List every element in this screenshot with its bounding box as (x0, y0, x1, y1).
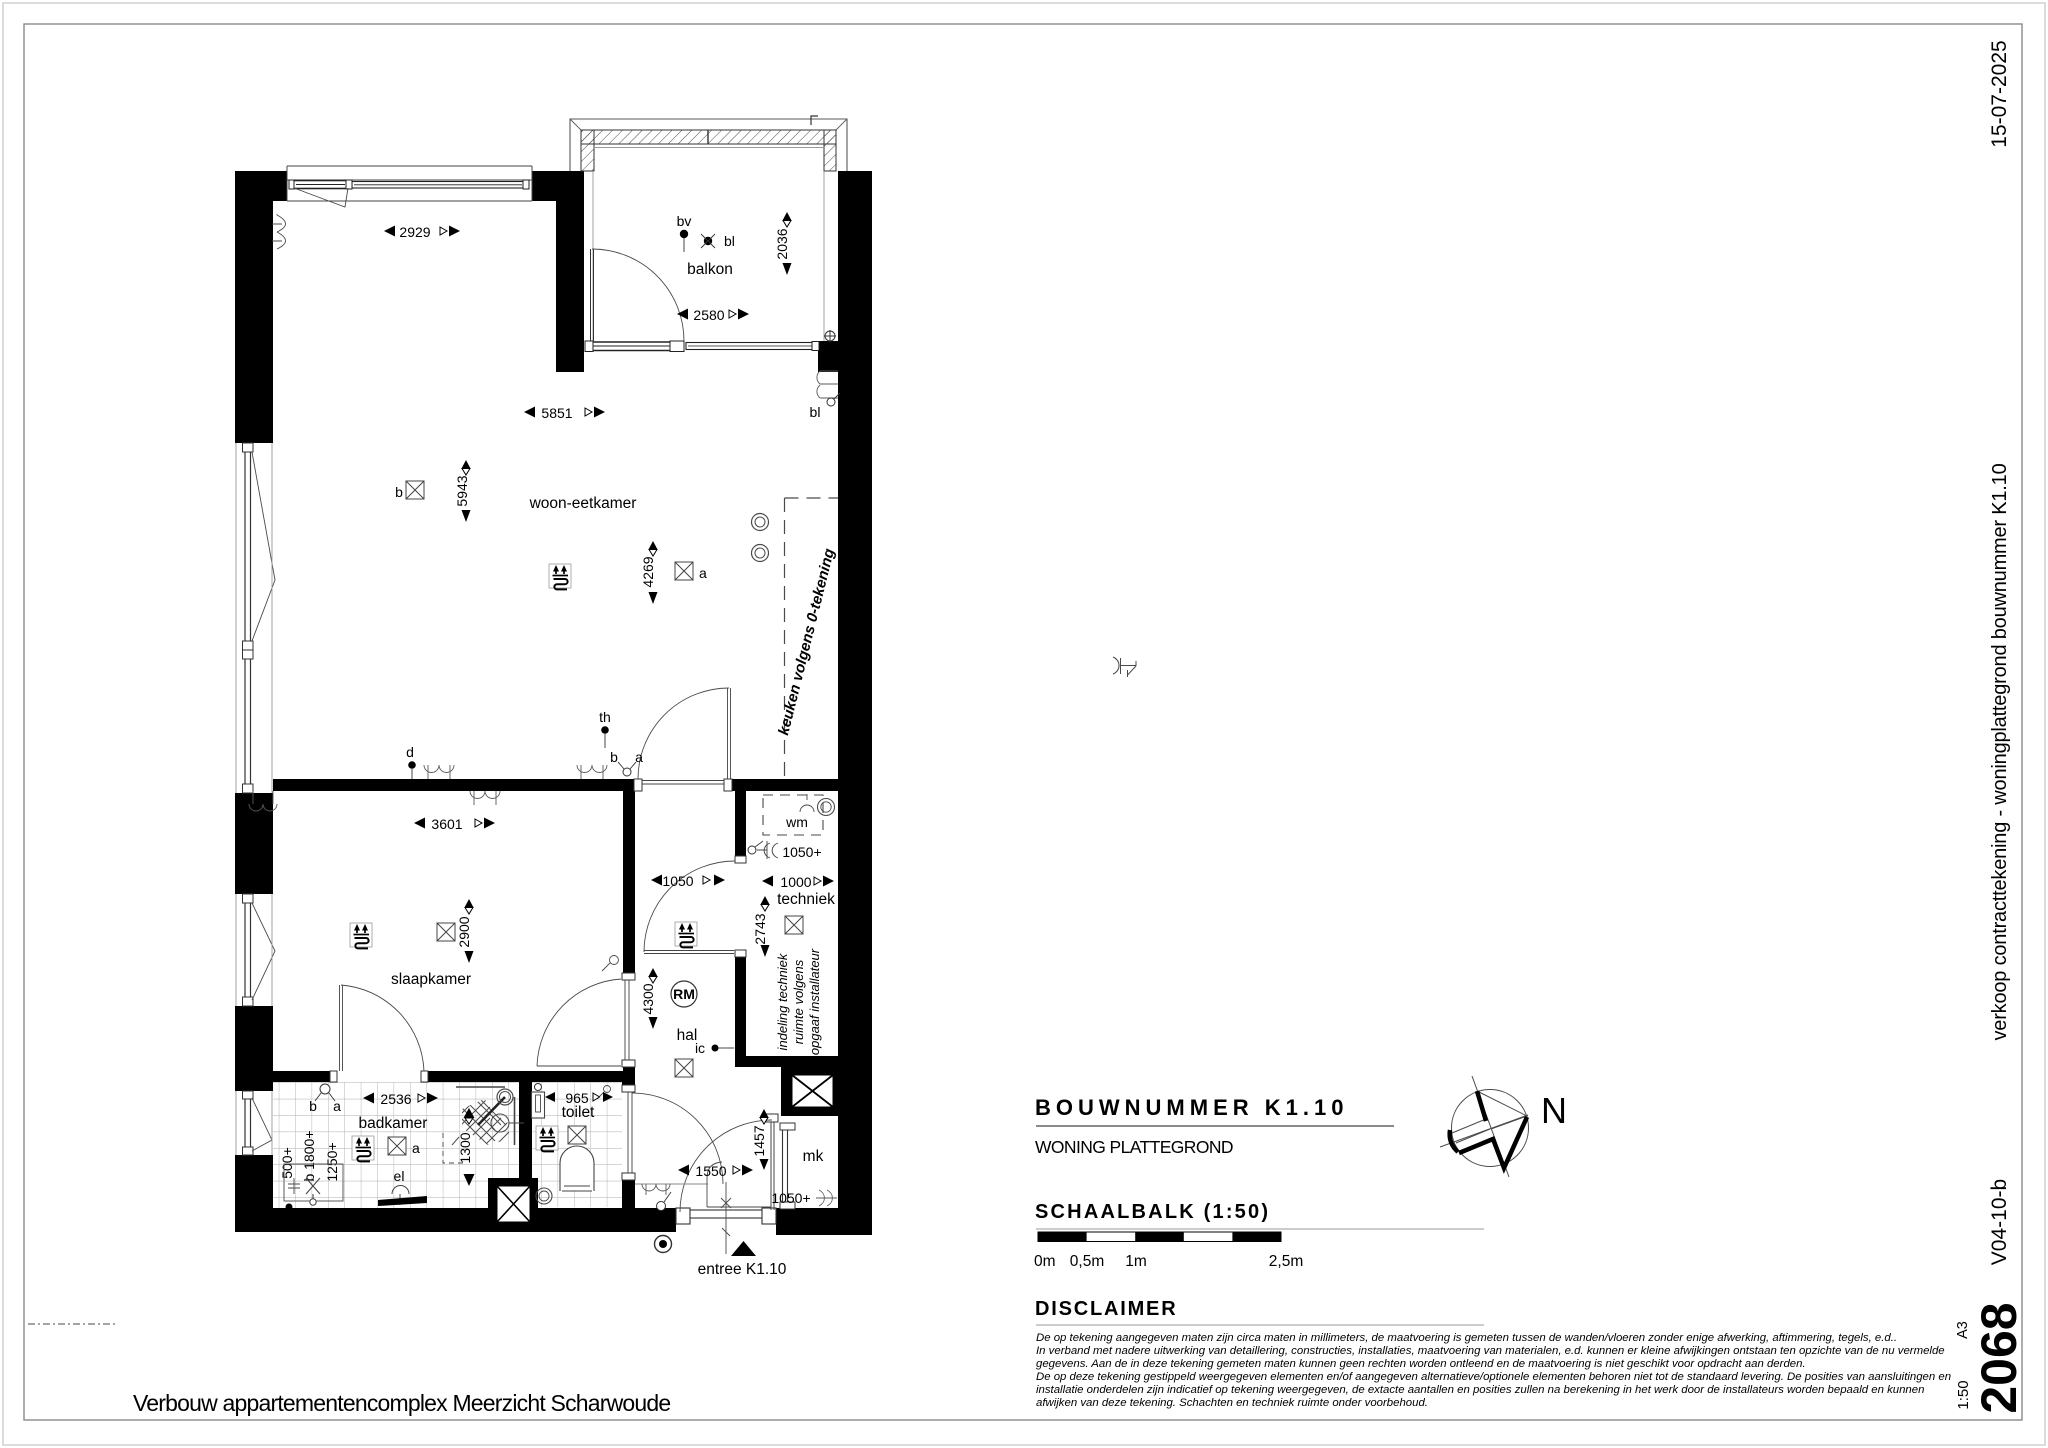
svg-text:badkamer: badkamer (359, 1115, 428, 1132)
svg-text:2900: 2900 (456, 916, 472, 947)
svg-text:DISCLAIMER: DISCLAIMER (1035, 1298, 1177, 1320)
svg-text:d: d (406, 744, 414, 760)
svg-text:indeling techniek: indeling techniek (775, 952, 790, 1050)
svg-text:slaapkamer: slaapkamer (391, 971, 471, 988)
svg-text:In verband met nadere uitwerki: In verband met nadere uitwerking van det… (1036, 1345, 1945, 1357)
svg-text:opgaaf installateur: opgaaf installateur (807, 948, 822, 1055)
svg-text:2536: 2536 (380, 1091, 411, 1107)
svg-text:2580: 2580 (693, 307, 724, 323)
svg-text:a: a (412, 1140, 420, 1156)
svg-text:1050+: 1050+ (782, 844, 821, 860)
svg-text:b 1800+: b 1800+ (301, 1131, 317, 1182)
svg-text:2,5m: 2,5m (1269, 1253, 1303, 1270)
svg-text:1050+: 1050+ (771, 1190, 810, 1206)
svg-text:a: a (333, 1098, 341, 1114)
svg-text:1250+: 1250+ (324, 1142, 340, 1181)
svg-text:5851: 5851 (541, 405, 572, 421)
svg-text:ruimte volgens: ruimte volgens (791, 959, 806, 1044)
svg-text:el: el (394, 1168, 405, 1184)
svg-text:techniek: techniek (777, 891, 835, 908)
svg-text:a: a (635, 749, 643, 765)
svg-text:1550: 1550 (695, 1163, 726, 1179)
svg-text:woon-eetkamer: woon-eetkamer (529, 495, 637, 512)
svg-text:balkon: balkon (687, 261, 733, 278)
svg-text:1000: 1000 (780, 874, 811, 890)
svg-text:b: b (309, 1098, 317, 1114)
svg-text:De op tekening aangegeven mate: De op tekening aangegeven maten zijn cir… (1036, 1332, 1897, 1344)
svg-text:965: 965 (565, 1090, 589, 1106)
svg-text:De op deze tekening gestippeld: De op deze tekening gestippeld weergegev… (1036, 1371, 1951, 1383)
svg-text:bl: bl (810, 404, 821, 420)
svg-text:3601: 3601 (431, 816, 462, 832)
svg-text:4300: 4300 (640, 983, 656, 1014)
svg-text:afwijken van deze tekening. Sc: afwijken van deze tekening. Schachten en… (1036, 1397, 1428, 1409)
svg-text:V04-10-b: V04-10-b (1988, 1179, 2011, 1265)
svg-text:entree K1.10: entree K1.10 (698, 1261, 787, 1278)
svg-text:BOUWNUMMER K1.10: BOUWNUMMER K1.10 (1035, 1095, 1348, 1120)
svg-text:2036: 2036 (774, 228, 790, 259)
svg-text:gegevens. Aan de in deze teken: gegevens. Aan de in deze tekening gemete… (1036, 1358, 1806, 1370)
svg-text:verkoop contracttekening - won: verkoop contracttekening - woningplatteg… (1989, 463, 2011, 1040)
svg-text:A3: A3 (1955, 1321, 1971, 1339)
svg-text:5943: 5943 (454, 475, 470, 506)
svg-text:bl: bl (724, 233, 735, 249)
svg-text:mk: mk (803, 1148, 824, 1165)
svg-text:2743: 2743 (752, 913, 768, 944)
svg-text:15-07-2025: 15-07-2025 (1988, 40, 2011, 147)
svg-text:b: b (610, 749, 618, 765)
svg-text:th: th (599, 709, 611, 725)
svg-text:ic: ic (695, 1040, 705, 1056)
svg-text:500+: 500+ (279, 1147, 295, 1179)
svg-text:2929: 2929 (399, 224, 430, 240)
svg-text:wm: wm (785, 814, 808, 830)
svg-text:1457: 1457 (751, 1125, 767, 1156)
svg-text:1050: 1050 (662, 873, 693, 889)
svg-text:toilet: toilet (562, 1104, 595, 1121)
svg-text:2068: 2068 (1971, 1302, 2027, 1413)
svg-text:a: a (699, 565, 707, 581)
svg-text:installatie onderdelen zijn in: installatie onderdelen zijn indicatief o… (1036, 1384, 1924, 1396)
svg-text:Verbouw appartementencomplex M: Verbouw appartementencomplex Meerzicht S… (133, 1390, 670, 1416)
svg-text:4269: 4269 (640, 556, 656, 587)
svg-text:b: b (395, 484, 403, 500)
svg-text:0,5m: 0,5m (1070, 1253, 1104, 1270)
svg-text:0m: 0m (1034, 1253, 1056, 1270)
svg-text:1:50: 1:50 (1955, 1380, 1972, 1409)
svg-text:1300: 1300 (457, 1132, 473, 1163)
svg-text:RM: RM (673, 986, 695, 1002)
svg-text:SCHAALBALK (1:50): SCHAALBALK (1:50) (1035, 1201, 1270, 1223)
svg-text:bv: bv (677, 213, 692, 229)
svg-text:N: N (1541, 1090, 1567, 1131)
svg-text:1m: 1m (1125, 1253, 1147, 1270)
svg-text:WONING PLATTEGROND: WONING PLATTEGROND (1035, 1137, 1233, 1157)
